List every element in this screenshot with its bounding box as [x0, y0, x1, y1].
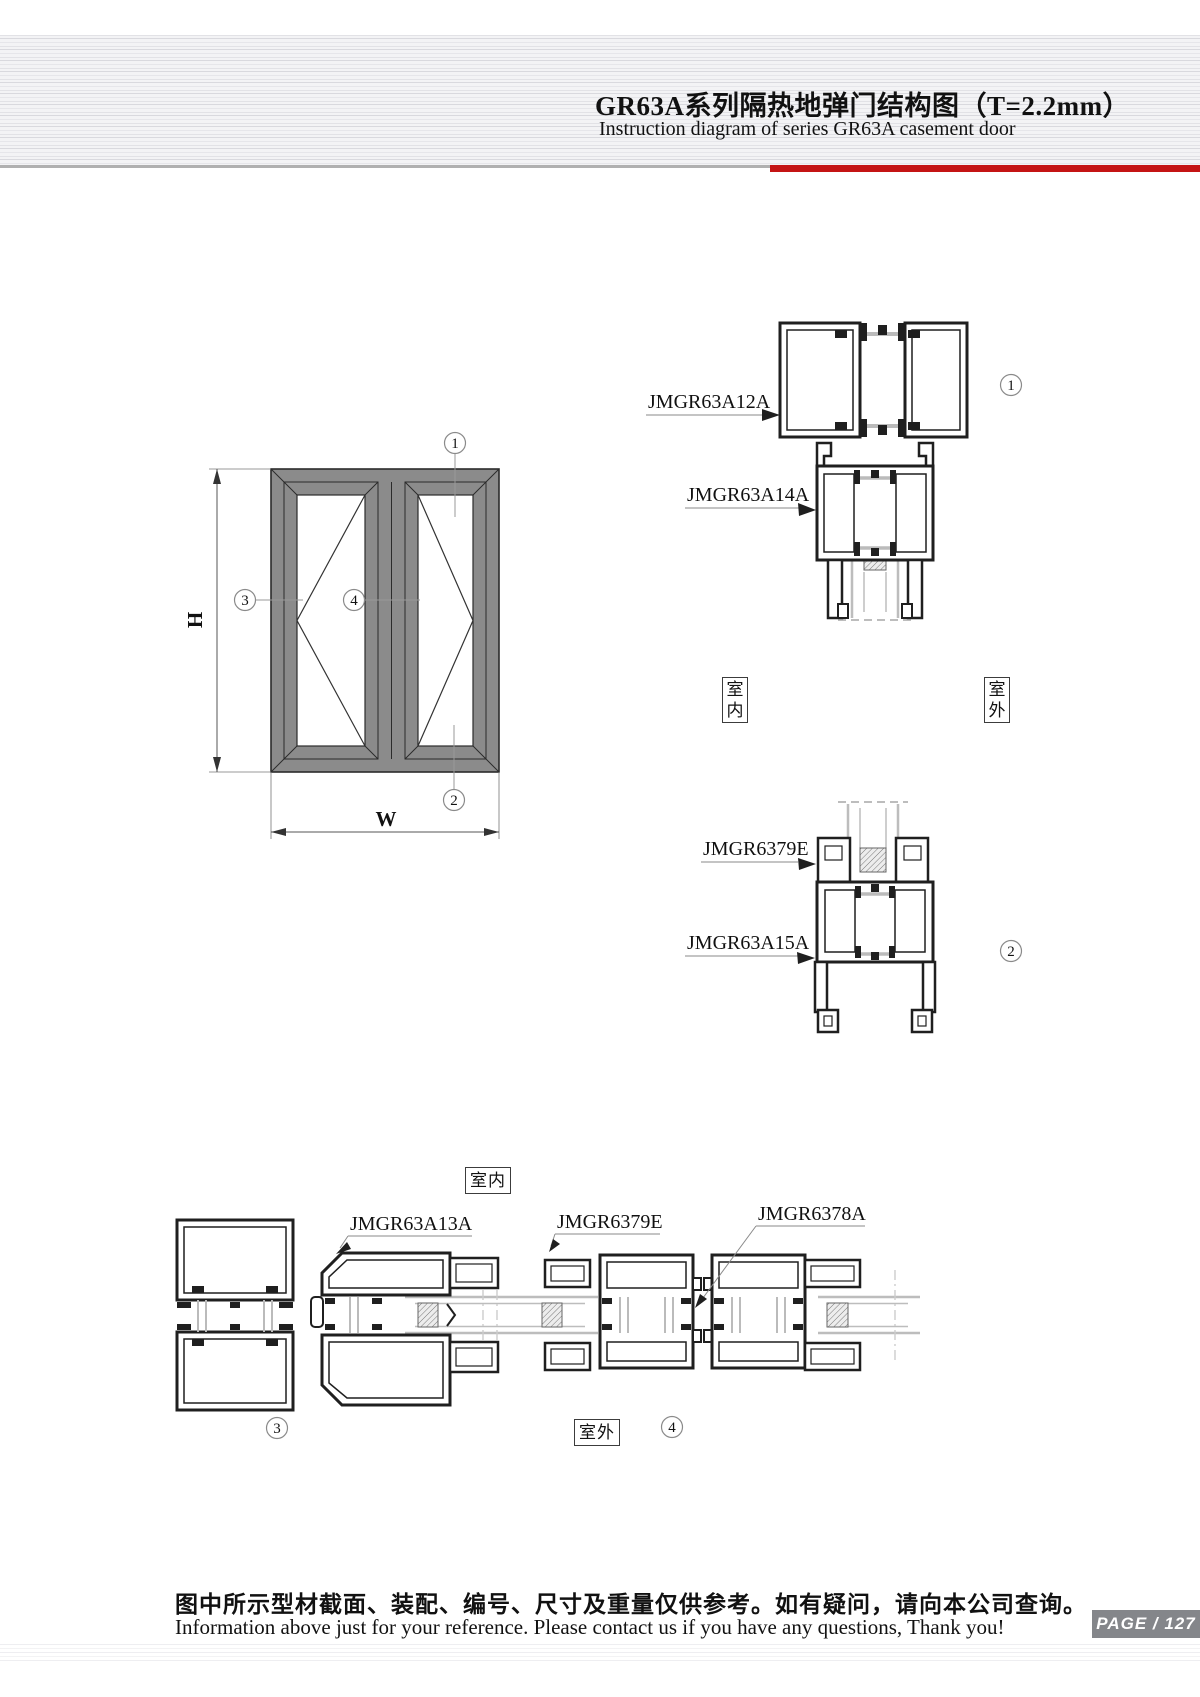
outdoor-label-box: 室外: [984, 677, 1010, 723]
svg-text:1: 1: [1007, 378, 1015, 394]
profile-meeting-left: [545, 1255, 701, 1370]
elevation-diagram: H W 1 2 3 4: [180, 395, 520, 855]
svg-text:1: 1: [451, 436, 459, 452]
svg-text:JMGR6379E: JMGR6379E: [557, 1211, 663, 1233]
svg-text:JMGR6379E: JMGR6379E: [703, 838, 809, 860]
section-detail-1: JMGR63A12A JMGR63A14A 1: [590, 300, 1060, 740]
height-dim-label: H: [183, 612, 207, 628]
plan-section: JMGR63A13A JMGR6379E JMGR6378A 3 4: [150, 1190, 950, 1455]
svg-text:3: 3: [241, 593, 249, 609]
callout-3: 3: [267, 1418, 288, 1439]
header-red-rule: [770, 165, 1200, 172]
profile-jmgr63a14a: [817, 443, 933, 618]
label-part2: JMGR63A14A: [685, 484, 816, 516]
svg-text:JMGR63A15A: JMGR63A15A: [687, 932, 810, 954]
svg-text:JMGR63A13A: JMGR63A13A: [350, 1213, 473, 1235]
svg-text:4: 4: [668, 1420, 676, 1436]
glazing-spacer: [860, 848, 886, 872]
svg-text:2: 2: [450, 793, 458, 809]
profile-jmgr63a15a: [815, 882, 935, 1032]
height-dimension: H: [183, 469, 271, 772]
profile-jmgr63a12a: [780, 323, 967, 437]
glazing-spacer-mid-left: [542, 1303, 562, 1327]
page-subtitle: Instruction diagram of series GR63A case…: [599, 118, 1016, 141]
indoor-label-box: 室内: [722, 677, 748, 723]
profile-jmgr63a13a: [311, 1253, 498, 1405]
callout-1: 1: [1001, 375, 1022, 396]
svg-text:3: 3: [273, 1421, 281, 1437]
svg-text:JMGR63A14A: JMGR63A14A: [687, 484, 810, 506]
glazing-spacer-left: [418, 1303, 438, 1327]
document-page: { "header": { "title_cn": "GR63A系列隔热地弹门结…: [0, 0, 1200, 1697]
label-part2: JMGR63A15A: [685, 932, 815, 964]
profile-frame-jamb: [177, 1220, 293, 1410]
label-part1: JMGR6379E: [701, 838, 816, 870]
svg-text:JMGR6378A: JMGR6378A: [758, 1203, 866, 1225]
door-frame: [271, 469, 499, 772]
label-part1: JMGR63A12A: [646, 391, 780, 421]
svg-text:JMGR63A12A: JMGR63A12A: [648, 391, 771, 413]
footer-note-cn: 图中所示型材截面、装配、编号、尺寸及重量仅供参考。如有疑问，请向本公司查询。: [175, 1585, 1087, 1619]
glazing-spacer-right: [827, 1303, 848, 1327]
section-detail-2: JMGR6379E JMGR63A15A 2: [590, 740, 1060, 1040]
label-part2: JMGR6379E: [549, 1211, 663, 1252]
svg-text:2: 2: [1007, 944, 1015, 960]
footer-note-en: Information above just for your referenc…: [175, 1615, 1004, 1640]
width-dim-label: W: [376, 807, 397, 831]
outdoor-label-box-plan: 室外: [574, 1419, 620, 1446]
callout-2: 2: [1001, 941, 1022, 962]
footer-stripe-band: [0, 1644, 1200, 1662]
callout-4: 4: [662, 1417, 683, 1438]
label-part1: JMGR63A13A: [336, 1213, 473, 1254]
svg-text:4: 4: [350, 593, 358, 609]
page-number-badge: PAGE / 127: [1092, 1610, 1200, 1638]
width-dimension: W: [271, 772, 499, 839]
